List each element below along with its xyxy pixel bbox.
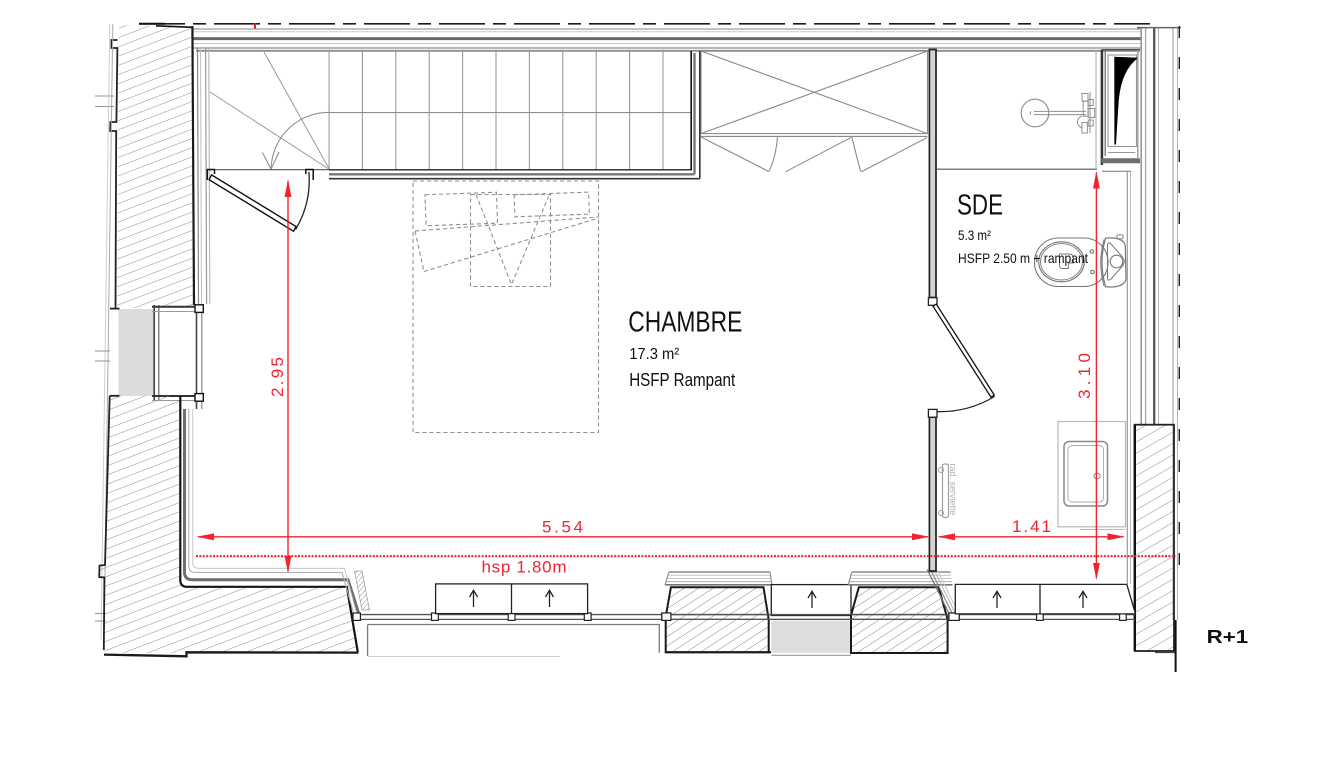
svg-text:SDE: SDE xyxy=(957,190,1003,222)
svg-text:3.10: 3.10 xyxy=(1075,353,1094,399)
svg-text:17.3 m²: 17.3 m² xyxy=(629,346,680,363)
svg-text:2.95: 2.95 xyxy=(268,357,287,397)
svg-text:CHAMBRE: CHAMBRE xyxy=(628,306,742,338)
svg-text:rad. serviette: rad. serviette xyxy=(948,464,958,516)
svg-text:5.54: 5.54 xyxy=(542,518,583,537)
svg-text:HSFP 2.50 m + rampant: HSFP 2.50 m + rampant xyxy=(958,250,1088,266)
svg-text:R+1: R+1 xyxy=(1207,626,1249,647)
svg-text:5.3 m²: 5.3 m² xyxy=(958,227,991,243)
svg-text:1.41: 1.41 xyxy=(1012,517,1051,536)
svg-text:hsp 1.80m: hsp 1.80m xyxy=(482,558,567,577)
svg-text:HSFP Rampant: HSFP Rampant xyxy=(629,370,735,390)
